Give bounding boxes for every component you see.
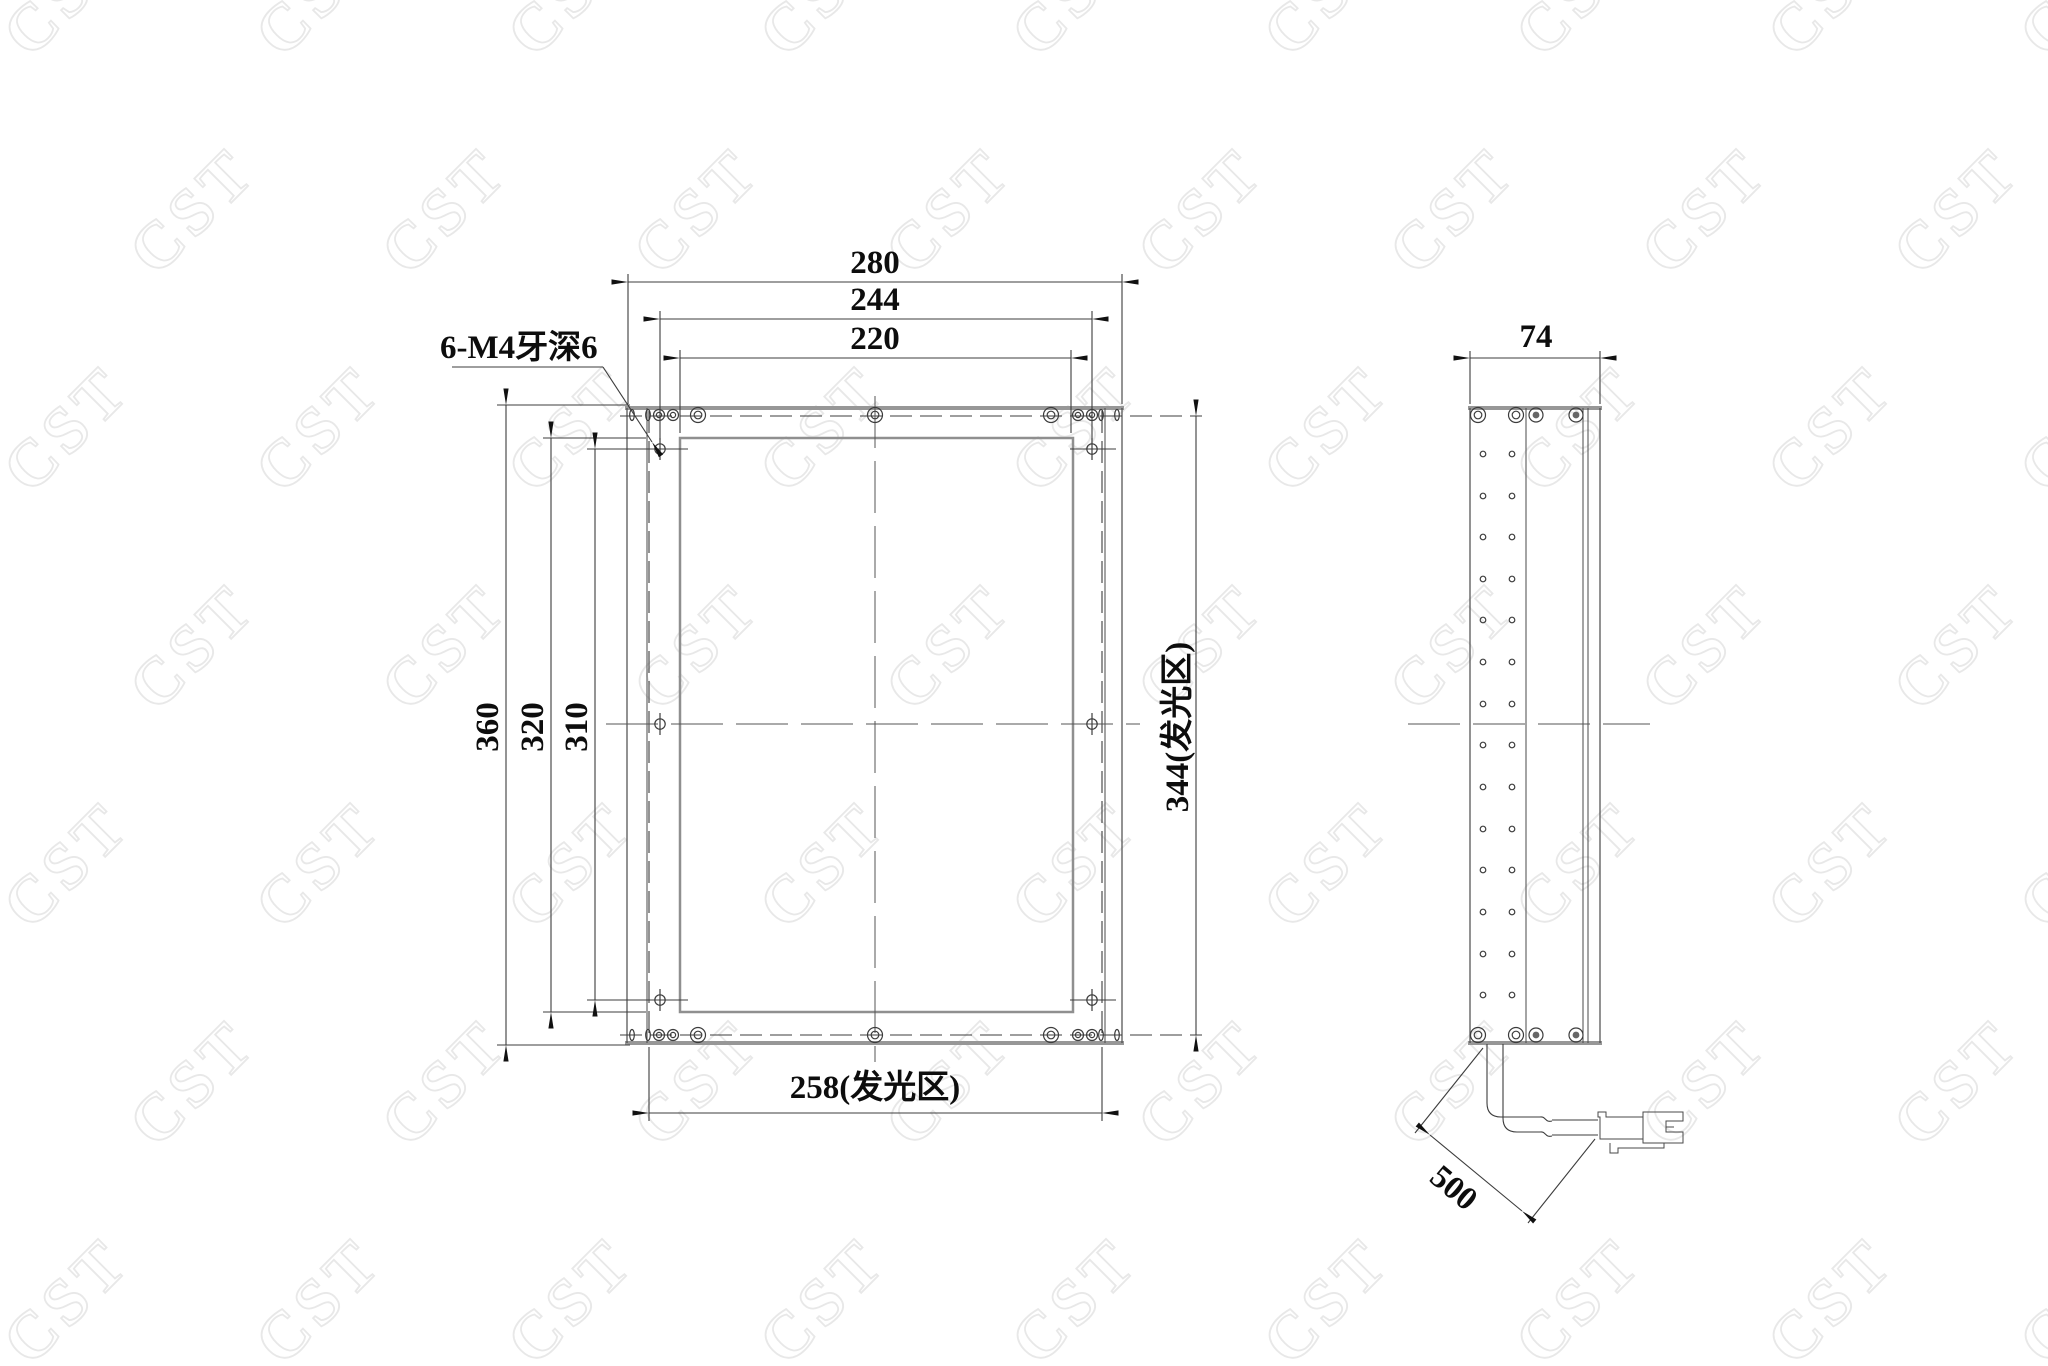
watermark-text: CST (1879, 133, 2034, 288)
watermark-text: CST (1123, 133, 1278, 288)
watermark-text: CST (745, 351, 900, 506)
watermark-text: CST (241, 1223, 396, 1366)
watermark-text: CST (367, 1005, 522, 1160)
watermark-text: CST (1879, 1005, 2034, 1160)
screw-hole (1529, 1028, 1543, 1042)
watermark-text: CST (115, 569, 270, 724)
dim-label-cable-length: 500 (1423, 1159, 1484, 1218)
technical-drawing-page: CSTCSTCSTCSTCSTCSTCSTCSTCSTCSTCSTCSTCSTC… (0, 0, 2048, 1366)
watermark-text: CST (1249, 1223, 1404, 1366)
watermark-text: CST (745, 0, 900, 71)
watermark-text: CST (2005, 787, 2048, 942)
screw-hole (1509, 1028, 1524, 1043)
front-inner-opening (680, 438, 1073, 1012)
watermark-text: CST (997, 0, 1152, 71)
watermark-text: CST (1375, 133, 1530, 288)
watermark-text: CST (1627, 133, 1782, 288)
watermark-text: CST (115, 1005, 270, 1160)
screw-hole (1569, 1028, 1583, 1042)
dim-label-depth: 74 (1520, 319, 1553, 355)
watermark-text: CST (0, 1223, 144, 1366)
watermark-text: CST (115, 133, 270, 288)
watermark-text: CST (1249, 787, 1404, 942)
watermark-text: CST (1501, 787, 1656, 942)
watermark-text: CST (0, 787, 144, 942)
dim-label-hole-span-height: 310 (559, 702, 595, 752)
watermark-text: CST (997, 351, 1152, 506)
watermark-text: CST (493, 351, 648, 506)
watermark-text: CST (241, 787, 396, 942)
watermark-text: CST (1753, 787, 1908, 942)
watermark-text: CST (1879, 569, 2034, 724)
watermark-text: CST (241, 0, 396, 71)
watermark-text: CST (1627, 569, 1782, 724)
dim-label-inner-width: 220 (850, 321, 900, 357)
thread-note-label: 6-M4牙深6 (440, 329, 598, 366)
watermark-text: CST (1627, 1005, 1782, 1160)
watermark-text: CST (2005, 1223, 2048, 1366)
dim-label-hole-span-width: 244 (850, 282, 900, 318)
watermark-text: CST (1123, 569, 1278, 724)
watermark-text: CST (619, 133, 774, 288)
watermark-text: CST (1501, 1223, 1656, 1366)
watermark-text: CST (871, 569, 1026, 724)
watermark-text: CST (745, 787, 900, 942)
drawing-canvas: CSTCSTCSTCSTCSTCSTCSTCSTCSTCSTCSTCSTCSTC… (0, 0, 2048, 1366)
watermark-text: CST (619, 569, 774, 724)
dim-label-outer-width: 280 (850, 245, 900, 281)
dim-label-luminous-width: 258(发光区) (790, 1069, 960, 1106)
dim-label-outer-height: 360 (470, 702, 506, 752)
watermark-text: CST (1753, 0, 1908, 71)
watermark-text: CST (1753, 1223, 1908, 1366)
watermark-text: CST (2005, 351, 2048, 506)
watermark-text: CST (493, 1223, 648, 1366)
dim-label-inner-height: 320 (515, 702, 551, 752)
watermark-text: CST (1249, 0, 1404, 71)
watermark-text: CST (997, 787, 1152, 942)
watermark-text: CST (1375, 1005, 1530, 1160)
watermark-text: CST (997, 1223, 1152, 1366)
watermark-text: CST (1375, 569, 1530, 724)
dim-label-luminous-height: 344(发光区) (1159, 642, 1196, 812)
watermark-text: CST (0, 0, 144, 71)
watermark-text: CST (745, 1223, 900, 1366)
watermark-text: CST (1123, 1005, 1278, 1160)
watermark-text: CST (1501, 351, 1656, 506)
watermark-text: CST (619, 1005, 774, 1160)
watermark-text: CST (1249, 351, 1404, 506)
watermark-text: CST (2005, 0, 2048, 71)
front-view (587, 396, 1202, 1062)
watermark-text: CST (493, 0, 648, 71)
watermark-layer: CSTCSTCSTCSTCSTCSTCSTCSTCSTCSTCSTCSTCSTC… (0, 0, 2048, 1366)
watermark-text: CST (1753, 351, 1908, 506)
watermark-text: CST (367, 569, 522, 724)
watermark-text: CST (241, 351, 396, 506)
watermark-text: CST (0, 351, 144, 506)
watermark-text: CST (367, 133, 522, 288)
watermark-text: CST (493, 787, 648, 942)
watermark-text: CST (1501, 0, 1656, 71)
